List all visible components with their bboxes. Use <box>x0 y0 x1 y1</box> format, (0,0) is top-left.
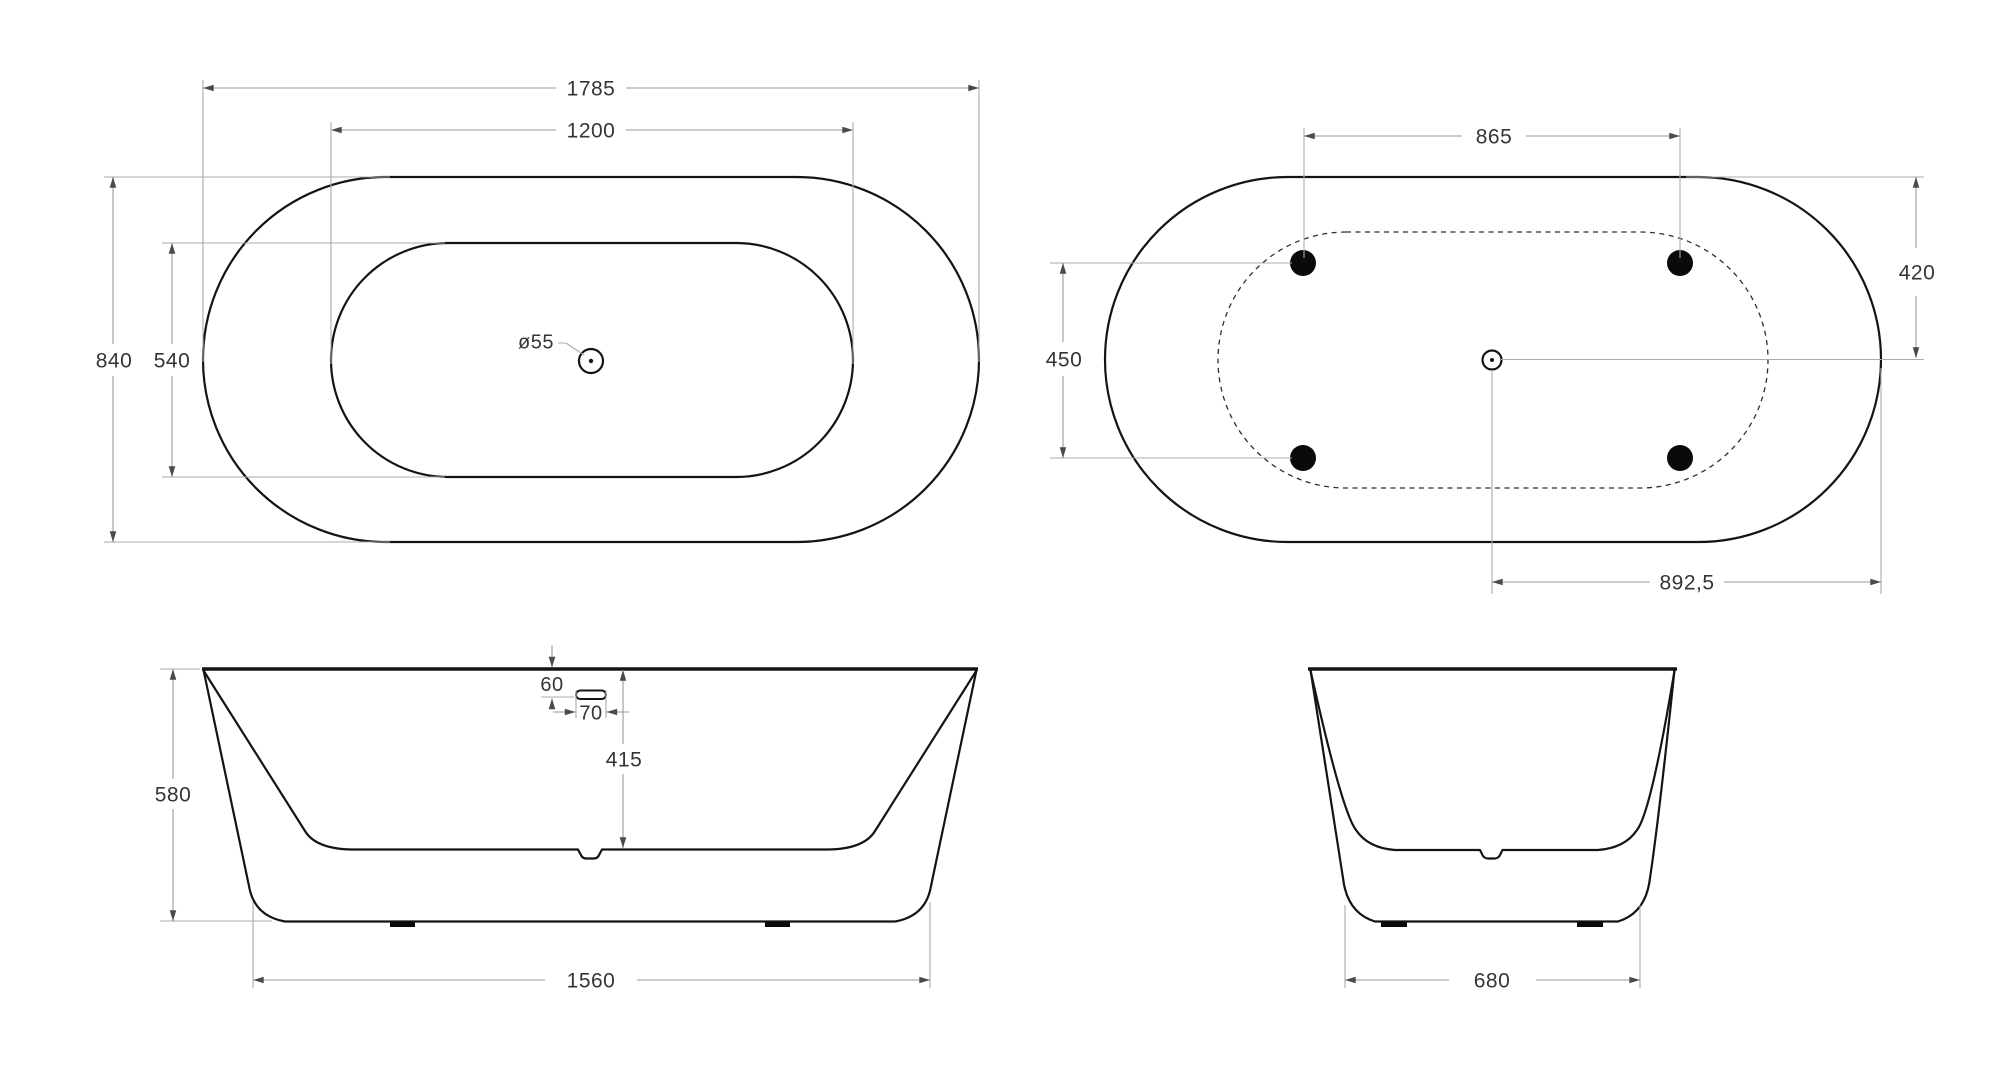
drain-center-dot <box>1490 358 1494 362</box>
drain-diameter-label: ø55 <box>518 332 554 354</box>
foot-pad <box>1667 445 1693 471</box>
overflow-width-label: 70 <box>579 703 602 725</box>
plan-bottom-view: 865 450 420 892,5 <box>1046 126 1936 595</box>
base-length-label: 1560 <box>567 970 616 993</box>
inner-width-label: 540 <box>154 350 191 373</box>
overall-width-label: 840 <box>96 350 133 373</box>
overall-height-label: 580 <box>155 784 192 807</box>
end-elevation-view: 680 <box>1308 669 1677 993</box>
drain-leader-line <box>558 343 584 355</box>
feet-span-width-label: 450 <box>1046 349 1083 372</box>
foot-pad <box>390 922 415 928</box>
overflow-drop-label: 60 <box>540 674 563 696</box>
overflow-hole <box>576 691 606 700</box>
drain-center-dot <box>589 359 593 363</box>
foot-pad <box>1290 250 1316 276</box>
side-elevation-view: 580 60 70 415 1560 <box>155 645 978 993</box>
inner-length-label: 1200 <box>567 120 616 143</box>
technical-drawing-page: ø55 1785 1200 840 540 <box>0 0 2000 1087</box>
rim-to-center-label: 420 <box>1899 262 1936 285</box>
inner-depth-label: 415 <box>606 749 643 772</box>
tub-inner-profile <box>1311 671 1675 859</box>
foot-pad <box>1577 922 1603 928</box>
plan-top-view: ø55 1785 1200 840 540 <box>96 78 979 543</box>
foot-pad <box>1381 922 1407 928</box>
tub-outer-profile <box>1311 670 1675 922</box>
foot-pad <box>1290 445 1316 471</box>
overall-length-label: 1785 <box>567 78 616 101</box>
foot-pad <box>765 922 790 928</box>
bathtub-drawing-canvas: ø55 1785 1200 840 540 <box>0 0 2000 1087</box>
feet-span-length-label: 865 <box>1476 126 1513 149</box>
center-to-end-label: 892,5 <box>1659 572 1714 595</box>
base-width-label: 680 <box>1474 970 1511 993</box>
